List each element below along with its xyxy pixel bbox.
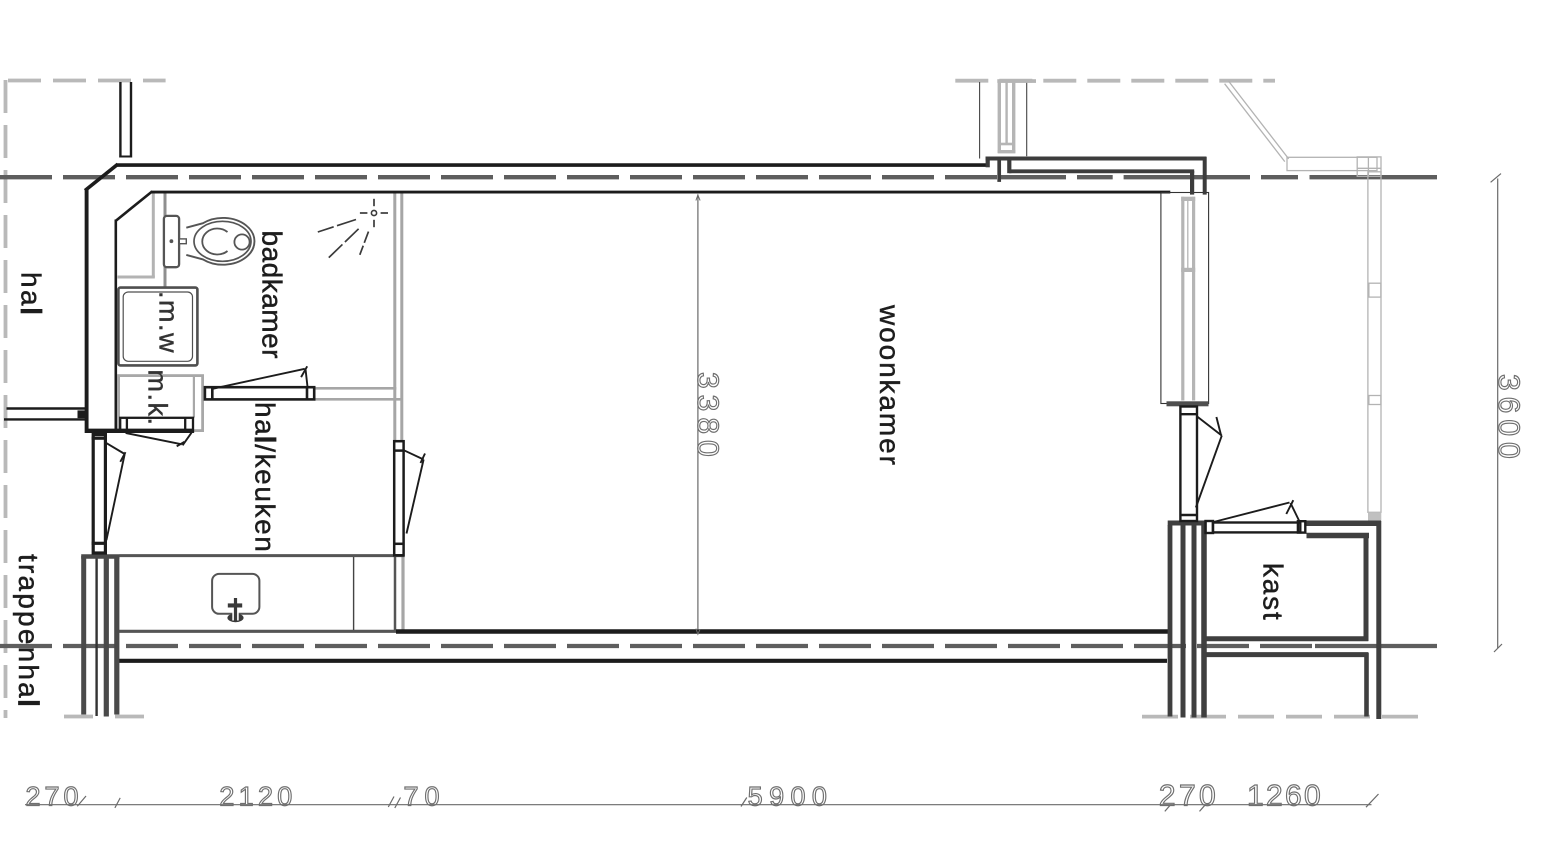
svg-text:hal: hal xyxy=(16,272,47,317)
svg-text:1260: 1260 xyxy=(1247,780,1323,813)
svg-text:5900: 5900 xyxy=(748,782,834,812)
svg-text:270: 270 xyxy=(1159,780,1219,813)
svg-text:trappenhal: trappenhal xyxy=(13,554,44,708)
svg-text:270: 270 xyxy=(25,782,82,812)
svg-text:hal/keuken: hal/keuken xyxy=(250,402,281,553)
svg-text:woonkamer: woonkamer xyxy=(874,304,905,467)
svg-text:m.k.: m.k. xyxy=(143,370,173,427)
svg-text:3600: 3600 xyxy=(1492,374,1525,465)
svg-text:70: 70 xyxy=(403,782,445,812)
svg-text:.m.w: .m.w xyxy=(154,291,184,354)
svg-text:3380: 3380 xyxy=(691,372,724,463)
svg-text:kast: kast xyxy=(1258,563,1289,622)
svg-text:badkamer: badkamer xyxy=(257,231,288,360)
svg-text:2120: 2120 xyxy=(219,782,296,812)
